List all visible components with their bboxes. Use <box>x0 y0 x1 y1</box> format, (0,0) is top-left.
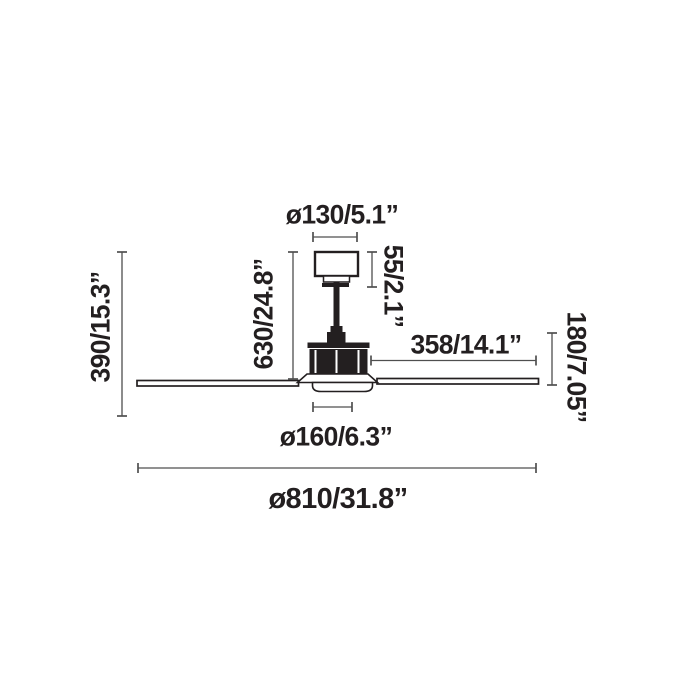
dim-blade-length: 358/14.1” <box>371 329 536 365</box>
dim-overall-diameter: ø810/31.8” <box>138 463 536 515</box>
dim-total-height: 390/15.3” <box>85 252 127 416</box>
fan-blade-left <box>137 381 299 387</box>
downrod <box>334 282 340 332</box>
dim-label-canopy-diameter: ø130/5.1” <box>286 199 398 229</box>
dim-label-total-height: 390/15.3” <box>85 271 115 382</box>
fan-dimension-diagram: ø130/5.1” 55/2.1” 630/24.8” 3 <box>0 0 675 675</box>
dim-label-body-diameter: ø160/6.3” <box>280 421 392 451</box>
dim-label-canopy-height: 55/2.1” <box>379 245 409 328</box>
motor-top-plate <box>308 343 370 349</box>
canopy-neck <box>324 276 350 282</box>
diagram-canvas: ø130/5.1” 55/2.1” 630/24.8” 3 <box>0 0 675 675</box>
dim-body-height: 180/7.05” <box>547 311 592 422</box>
dim-label-height-to-blades: 630/24.8” <box>248 258 278 369</box>
fan-drawing <box>137 252 539 392</box>
dim-canopy-height: 55/2.1” <box>367 245 409 328</box>
ceiling-canopy <box>315 252 358 276</box>
dim-label-overall-diameter: ø810/31.8” <box>268 483 407 515</box>
light-dome <box>313 383 373 392</box>
dim-canopy-diameter: ø130/5.1” <box>286 199 398 242</box>
dim-body-diameter: ø160/6.3” <box>280 402 392 451</box>
fan-blade-right <box>377 379 539 385</box>
dim-label-blade-length: 358/14.1” <box>410 329 521 359</box>
dim-label-body-height: 180/7.05” <box>562 311 592 422</box>
dim-height-to-blades: 630/24.8” <box>248 252 298 379</box>
downrod-coupler-upper <box>331 326 343 333</box>
downrod-coupler-lower <box>327 332 346 343</box>
motor-shroud <box>298 374 378 383</box>
